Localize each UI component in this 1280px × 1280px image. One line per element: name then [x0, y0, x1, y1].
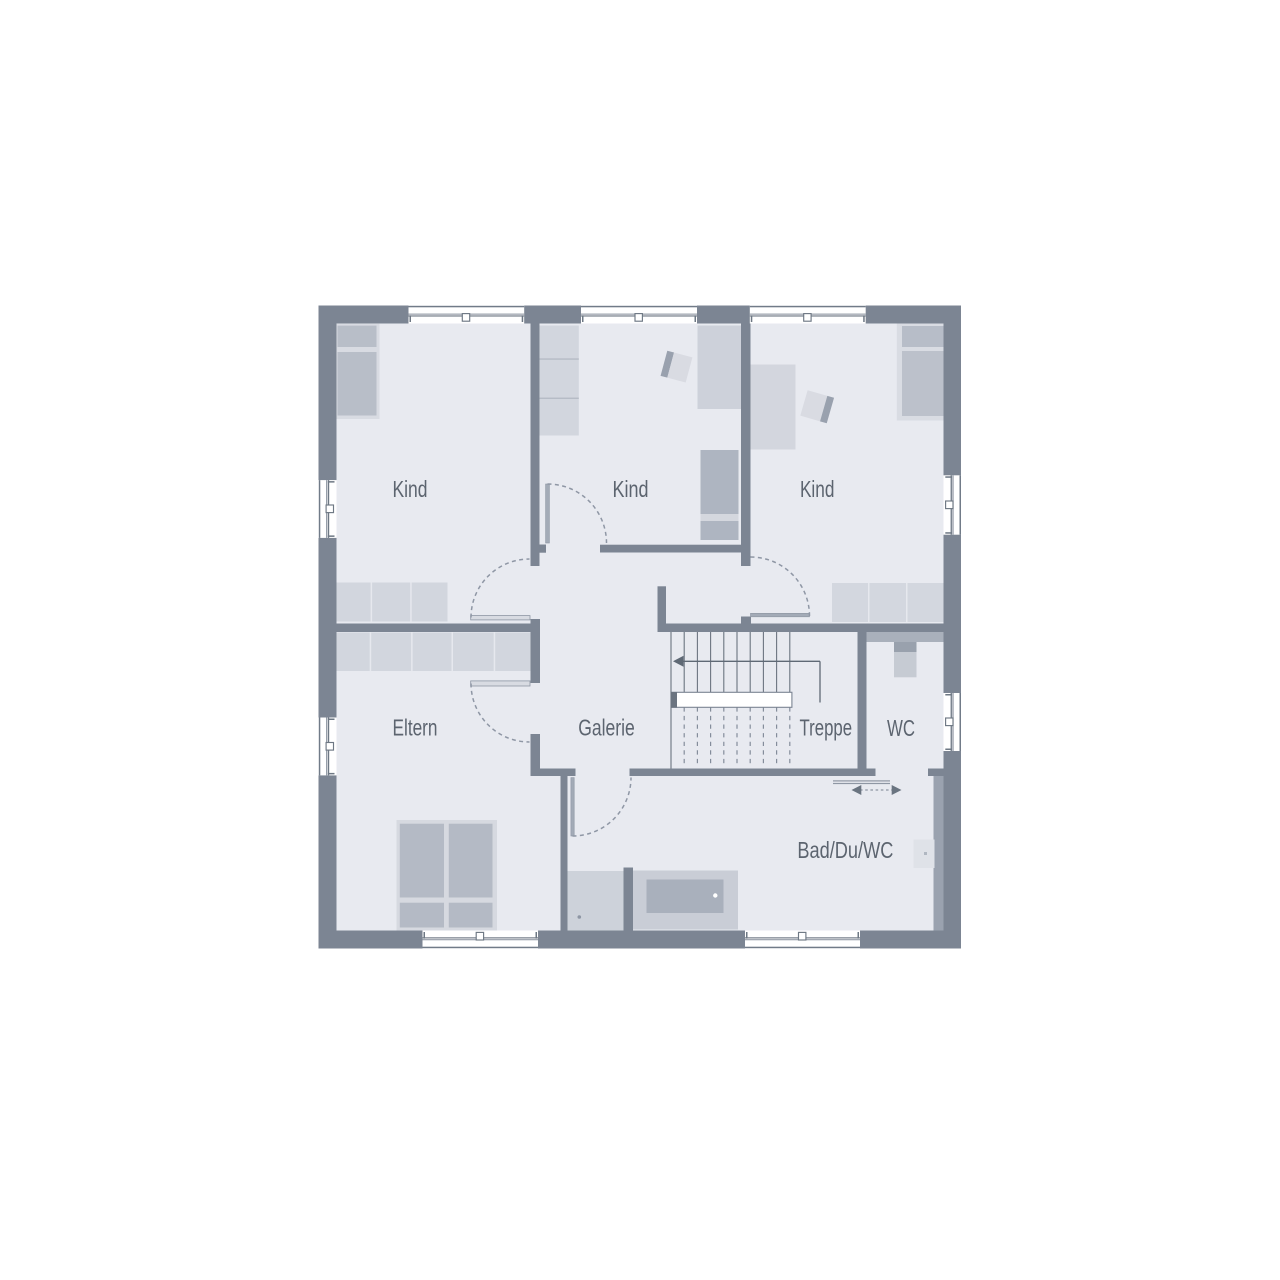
svg-text:Treppe: Treppe	[800, 715, 853, 741]
svg-text:Galerie: Galerie	[578, 715, 635, 741]
svg-text:Kind: Kind	[393, 476, 428, 502]
svg-text:WC: WC	[887, 715, 915, 741]
svg-text:Bad/Du/WC: Bad/Du/WC	[797, 837, 893, 863]
svg-text:Eltern: Eltern	[393, 714, 438, 740]
svg-text:Kind: Kind	[613, 476, 649, 502]
svg-text:Kind: Kind	[800, 476, 835, 502]
